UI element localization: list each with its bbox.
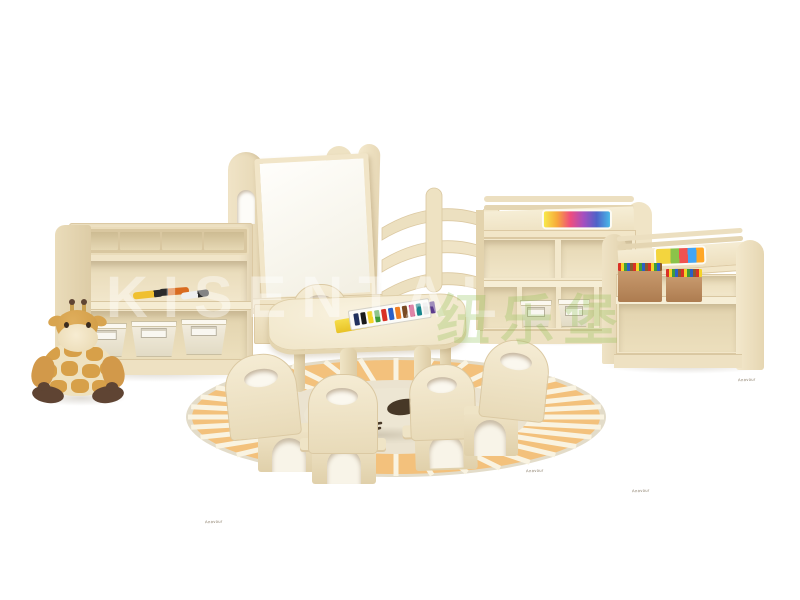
paint-tube	[381, 309, 388, 322]
crayon-tips	[618, 263, 662, 271]
chair-base	[464, 414, 518, 456]
bottom-shelf	[619, 304, 737, 352]
colorful-artwork	[656, 247, 704, 264]
paint-tube	[429, 301, 436, 314]
open-shelf	[75, 261, 247, 303]
paint-tube	[353, 313, 360, 326]
chair-mirror-wrapper	[464, 338, 550, 456]
chair-arch-cutout	[474, 420, 506, 456]
caddy-compartment	[204, 232, 244, 250]
rainbow-paper	[544, 211, 610, 227]
paint-tube	[422, 302, 429, 315]
bin-label	[565, 306, 583, 316]
toddler-chair-front-left	[298, 374, 392, 484]
paint-tube	[367, 311, 374, 324]
product-photo-scene: Anovour Anovour	[0, 0, 800, 600]
storage-bin	[131, 321, 177, 357]
caddy-compartment	[162, 232, 202, 250]
storage-bin	[558, 299, 590, 327]
chair-backrest	[308, 374, 378, 454]
display-shelf-unit: Anovour	[602, 224, 768, 376]
divided-top-caddy	[73, 227, 249, 255]
chair-backrest	[478, 337, 552, 423]
crayon-box	[618, 270, 662, 302]
cubby	[484, 240, 555, 278]
storage-bin	[181, 319, 227, 355]
cabinet-side-panel	[476, 210, 484, 330]
giraffe-hand	[106, 382, 118, 391]
unit-side-panel	[736, 240, 764, 370]
brand-stamp: Anovour	[205, 519, 223, 525]
bin-label	[191, 326, 217, 336]
paint-tube	[395, 307, 402, 320]
caddy-compartment	[120, 232, 160, 250]
giraffe-muzzle	[58, 324, 98, 352]
giraffe-eye	[64, 322, 69, 328]
paint-tube	[409, 304, 416, 317]
brand-stamp: Anovour	[738, 377, 756, 383]
paint-set	[334, 299, 431, 338]
giraffe-hand	[38, 382, 50, 391]
chair-grip-cutout	[326, 388, 358, 405]
paint-tube	[402, 305, 409, 318]
toddler-chair-right	[464, 338, 550, 456]
cubby	[484, 287, 517, 328]
storage-bin	[520, 300, 552, 327]
chair-backrest	[222, 350, 302, 441]
brand-stamp: Anovour	[526, 468, 544, 474]
crayon-tips	[666, 269, 702, 277]
whiteboard-surface	[254, 153, 375, 303]
paint-tube	[388, 308, 395, 321]
paint-tube-tray	[348, 298, 432, 331]
brand-stamp: Anovour	[632, 488, 650, 494]
bin-label	[141, 328, 167, 338]
giraffe-eye	[86, 322, 91, 328]
paint-tube	[360, 312, 367, 325]
display-rail-rod	[484, 196, 634, 202]
crayon-box	[666, 276, 702, 302]
giraffe-plush-toy	[30, 302, 126, 404]
paint-tube	[415, 303, 422, 316]
paint-tube	[374, 310, 381, 323]
table-top	[267, 293, 467, 352]
bin-label	[527, 307, 545, 317]
unit-base: Anovour	[614, 354, 742, 368]
